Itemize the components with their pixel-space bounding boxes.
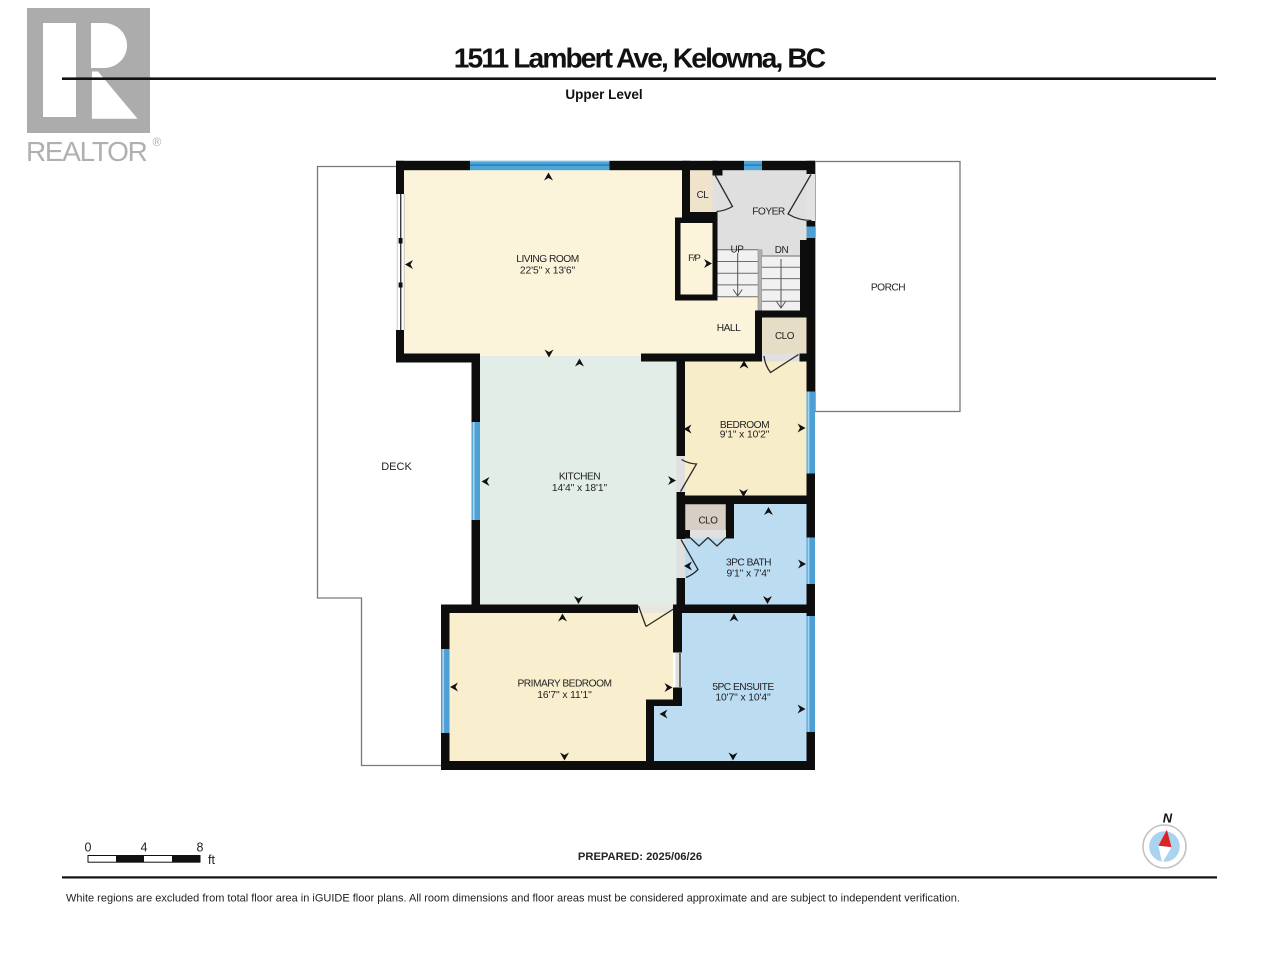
svg-text:1511 Lambert Ave, Kelowna, BC: 1511 Lambert Ave, Kelowna, BC — [454, 42, 826, 74]
svg-text:4: 4 — [141, 841, 148, 855]
svg-text:5PC ENSUITE: 5PC ENSUITE — [712, 682, 774, 693]
svg-text:9'1" x 10'2": 9'1" x 10'2" — [720, 430, 770, 441]
svg-text:N: N — [1163, 811, 1173, 826]
svg-text:PREPARED: 2025/06/26: PREPARED: 2025/06/26 — [578, 851, 702, 863]
svg-text:FOYER: FOYER — [752, 207, 785, 218]
svg-text:PORCH: PORCH — [871, 283, 905, 294]
svg-text:14'4" x 18'1": 14'4" x 18'1" — [552, 483, 608, 494]
svg-text:F/P: F/P — [688, 253, 700, 264]
svg-text:CLO: CLO — [698, 516, 718, 527]
svg-text:CLO: CLO — [775, 331, 795, 342]
svg-text:REALTOR: REALTOR — [26, 136, 147, 167]
svg-text:LIVING ROOM: LIVING ROOM — [516, 254, 578, 265]
svg-text:PRIMARY BEDROOM: PRIMARY BEDROOM — [517, 679, 611, 690]
svg-text:0: 0 — [85, 841, 92, 855]
svg-text:9'1" x 7'4": 9'1" x 7'4" — [727, 569, 771, 580]
svg-text:®: ® — [153, 135, 162, 149]
svg-text:CL: CL — [697, 190, 710, 201]
svg-text:KITCHEN: KITCHEN — [559, 472, 600, 483]
svg-text:8: 8 — [197, 841, 204, 855]
svg-text:White regions are excluded fro: White regions are excluded from total fl… — [66, 893, 960, 905]
svg-text:Upper Level: Upper Level — [565, 87, 642, 102]
svg-text:DN: DN — [775, 245, 789, 256]
svg-text:HALL: HALL — [717, 323, 741, 334]
svg-text:UP: UP — [731, 245, 745, 256]
svg-text:DECK: DECK — [381, 461, 412, 473]
svg-text:3PC BATH: 3PC BATH — [726, 558, 771, 569]
svg-text:16'7" x 11'1": 16'7" x 11'1" — [537, 690, 592, 701]
svg-text:ft: ft — [208, 853, 215, 867]
svg-text:22'5" x 13'6": 22'5" x 13'6" — [520, 266, 576, 277]
svg-text:10'7" x 10'4": 10'7" x 10'4" — [715, 693, 771, 704]
